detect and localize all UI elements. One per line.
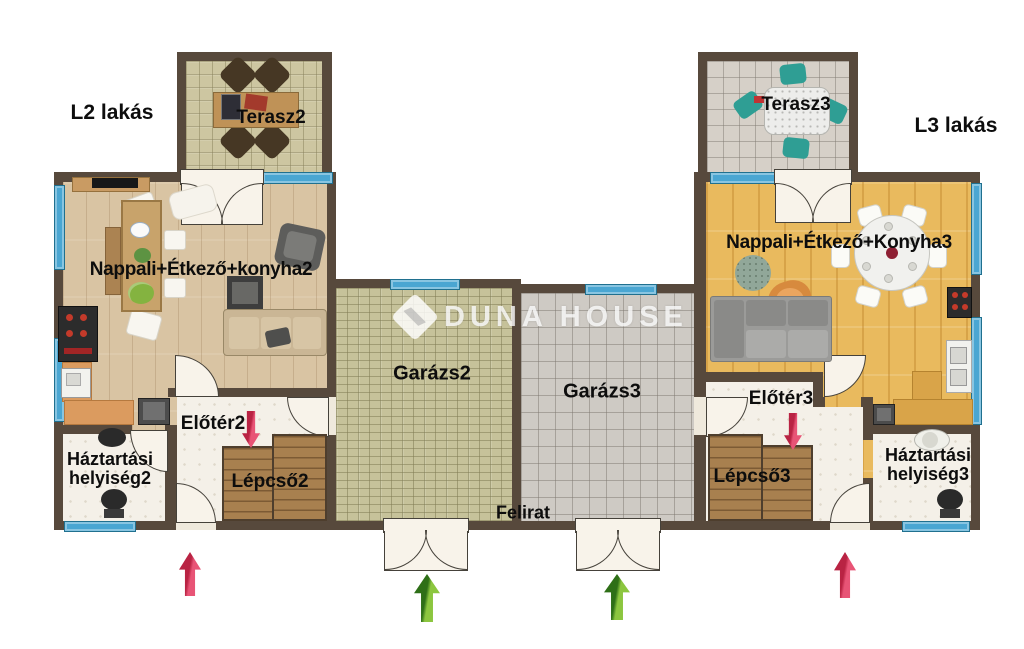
- wall-l3-inner-h1: [697, 372, 823, 382]
- stove-burner: [66, 314, 73, 321]
- toilet: [937, 489, 963, 510]
- entrance-arrow-icon: [179, 552, 201, 596]
- label-garazs2: Garázs2: [393, 364, 471, 385]
- fruit-bowl: [128, 282, 154, 304]
- kitchen-counter: [912, 371, 942, 400]
- door-garazs2-open: [384, 531, 468, 571]
- door-garazs3-open: [576, 531, 660, 571]
- table-plate: [884, 222, 893, 231]
- door-arc: [221, 183, 262, 225]
- window-l3-top-left: [710, 172, 778, 184]
- door-arc: [617, 530, 659, 570]
- washing-machine-lid: [877, 408, 891, 421]
- terrace3-chair: [779, 63, 807, 86]
- toilet-tank: [104, 509, 124, 518]
- sofa-cushion: [788, 300, 828, 326]
- window-l2-left-upper: [54, 185, 65, 270]
- window-l2-top-right: [262, 172, 333, 184]
- kitchen-counter: [893, 399, 973, 425]
- kitchen-counter: [64, 400, 134, 425]
- dunahouse-logo-icon: [391, 293, 439, 341]
- wall-l3-inner-h2b: [861, 397, 873, 407]
- stove: [947, 287, 972, 318]
- garage-entrance-arrow-icon: [414, 574, 440, 622]
- wall-l3-inner-h2a: [813, 397, 825, 407]
- terrace3-chair: [782, 137, 810, 160]
- door-arc: [812, 183, 850, 223]
- watermark: DUNA HOUSE: [398, 300, 688, 334]
- wall-terasz3-top: [698, 52, 858, 61]
- label-lepcso3: Lépcső3: [713, 467, 790, 487]
- wall-terasz3-left: [698, 52, 707, 181]
- stove-burner: [952, 304, 958, 310]
- label-nappali2: Nappali+Étkező+konyha2: [90, 260, 313, 280]
- dining-chair: [164, 230, 186, 250]
- window-l3-right-upper: [971, 183, 982, 275]
- label-terasz2: Terasz2: [236, 108, 305, 128]
- wall-terasz2-top: [177, 52, 332, 61]
- label-eloter3: Előtér3: [749, 389, 813, 409]
- sink-basin: [950, 369, 967, 386]
- door-arc: [776, 183, 814, 223]
- table-plate: [884, 274, 893, 283]
- label-nappali3: Nappali+Étkező+Konyha3: [726, 233, 952, 253]
- sink-basin: [66, 373, 81, 386]
- label-felirat: Felirat: [496, 504, 550, 523]
- door-arc: [385, 530, 427, 570]
- door-gap-l3-garage: [694, 397, 706, 435]
- utility-basin: [98, 428, 126, 447]
- sofa-cushion: [788, 330, 828, 358]
- door-arc: [425, 530, 467, 570]
- toilet: [101, 489, 127, 510]
- washing-machine-lid: [143, 402, 165, 420]
- sofa-cushion: [746, 300, 786, 326]
- stove-burner: [952, 292, 958, 298]
- stove-burner: [962, 304, 968, 310]
- label-garazs3: Garázs3: [563, 382, 641, 403]
- plate-set: [130, 222, 150, 238]
- label-haztartasi3: Háztartási helyiség3: [868, 446, 988, 484]
- round-rug: [735, 255, 771, 291]
- tv-stand-top: [232, 282, 258, 304]
- stove-burner: [80, 330, 87, 337]
- wall-l2-right: [327, 172, 336, 530]
- wall-haztartasi3-left-a: [863, 407, 873, 440]
- floor-plan: DUNA HOUSE L2 lakás L3 lakás Terasz2 Ter…: [0, 0, 1024, 649]
- window-l3-bottom: [902, 521, 970, 532]
- wall-l2-inner-b: [218, 388, 336, 397]
- label-terasz3: Terasz3: [761, 95, 830, 115]
- wall-terasz2-left: [177, 52, 186, 181]
- entrance-arrow-icon: [834, 552, 856, 598]
- watermark-text: DUNA HOUSE: [444, 301, 688, 334]
- sofa-cushion: [714, 300, 744, 358]
- sofa-cushion: [746, 330, 786, 358]
- door-arc: [577, 530, 619, 570]
- window-l2-bottom: [64, 521, 136, 532]
- wall-terasz3-right: [849, 52, 858, 181]
- stove-display: [64, 348, 92, 354]
- stove-burner: [962, 292, 968, 298]
- window-garazs3-top: [585, 284, 657, 295]
- stove-burner: [66, 330, 73, 337]
- label-haztartasi2: Háztartási helyiség2: [54, 450, 166, 488]
- label-lepcso2: Lépcső2: [231, 472, 308, 492]
- door-terasz3-open: [775, 183, 851, 223]
- stove-burner: [80, 314, 87, 321]
- garage-entrance-arrow-icon: [604, 574, 630, 620]
- label-l3-lakas: L3 lakás: [915, 115, 998, 137]
- table-plate: [862, 262, 871, 271]
- label-eloter2: Előtér2: [181, 414, 245, 434]
- dining-chair: [164, 278, 186, 298]
- toilet-tank: [940, 509, 960, 518]
- sink-basin: [950, 347, 967, 364]
- tv-flat: [92, 178, 138, 188]
- wall-terasz2-right: [322, 52, 332, 181]
- table-plate: [908, 262, 917, 271]
- sofa-cushion: [293, 317, 321, 349]
- label-l2-lakas: L2 lakás: [71, 102, 154, 124]
- sofa-cushion: [229, 317, 259, 349]
- window-garazs2-top: [390, 279, 460, 290]
- wall-l3-left: [694, 172, 706, 530]
